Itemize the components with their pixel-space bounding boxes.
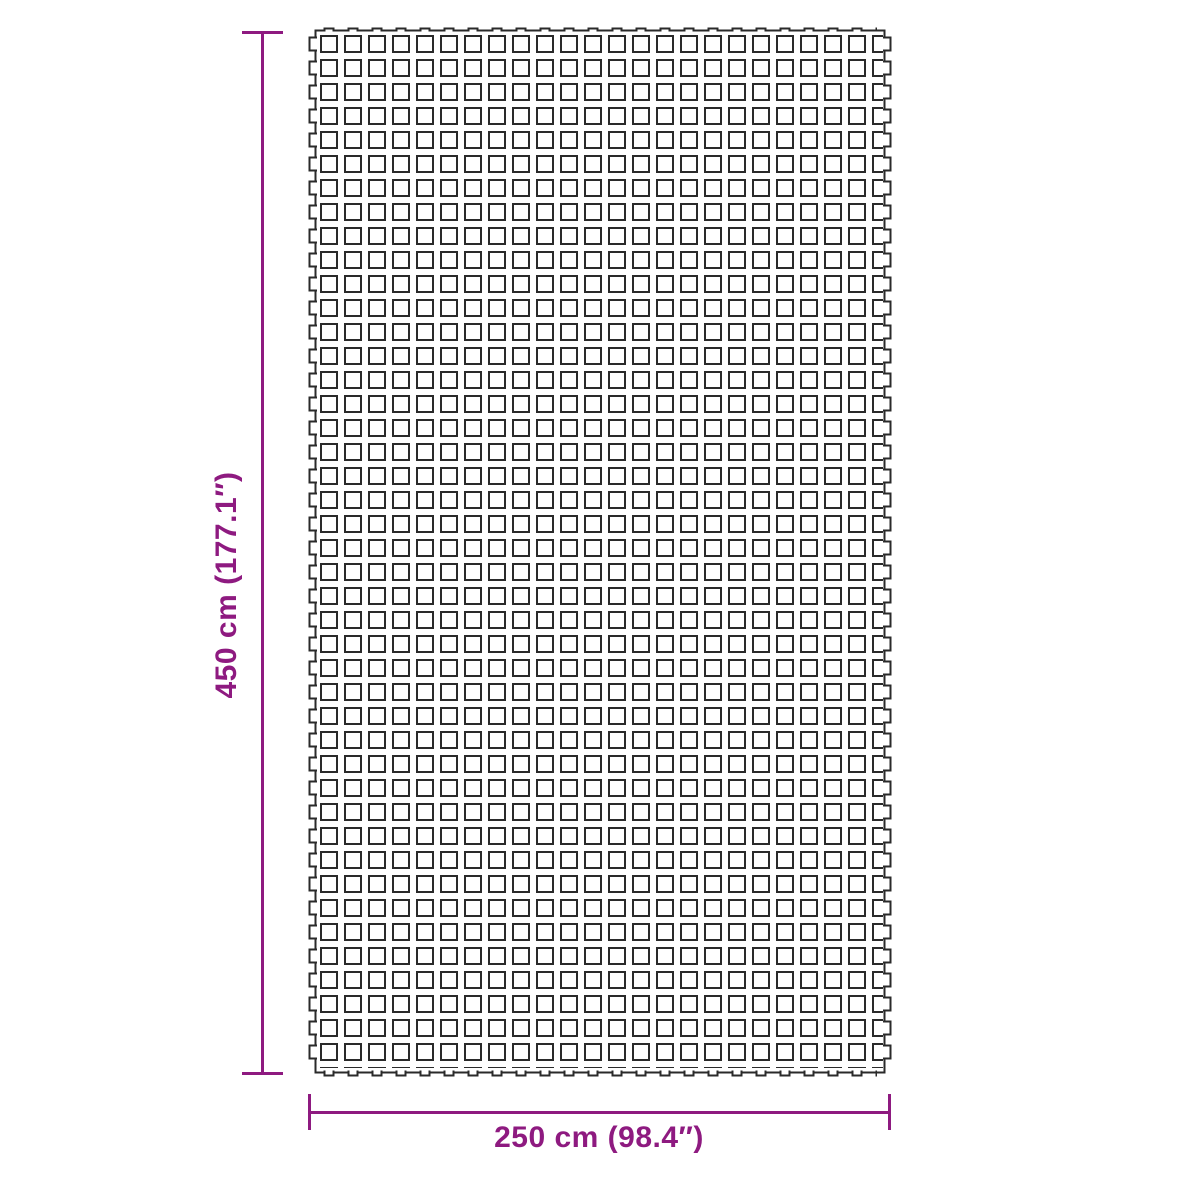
mat-holes-pattern [317,32,883,1068]
width-dimension-line [309,1111,889,1114]
mat-graphic [302,22,898,1080]
width-dimension-label: 250 cm (98.4″) [309,1121,889,1155]
height-dimension-cap-top [242,31,283,34]
mat-right-tabs [883,32,895,1062]
mat-left-tabs [305,32,317,1062]
height-dimension-line [261,32,264,1073]
product-dimension-diagram: 450 cm (177.1″) 250 cm (98.4″) [0,0,1200,1200]
mat-top-tabs [317,24,877,34]
height-dimension-label: 450 cm (177.1″) [210,471,244,698]
mat-bottom-tabs [317,1066,877,1078]
height-dimension-cap-bottom [242,1072,283,1075]
